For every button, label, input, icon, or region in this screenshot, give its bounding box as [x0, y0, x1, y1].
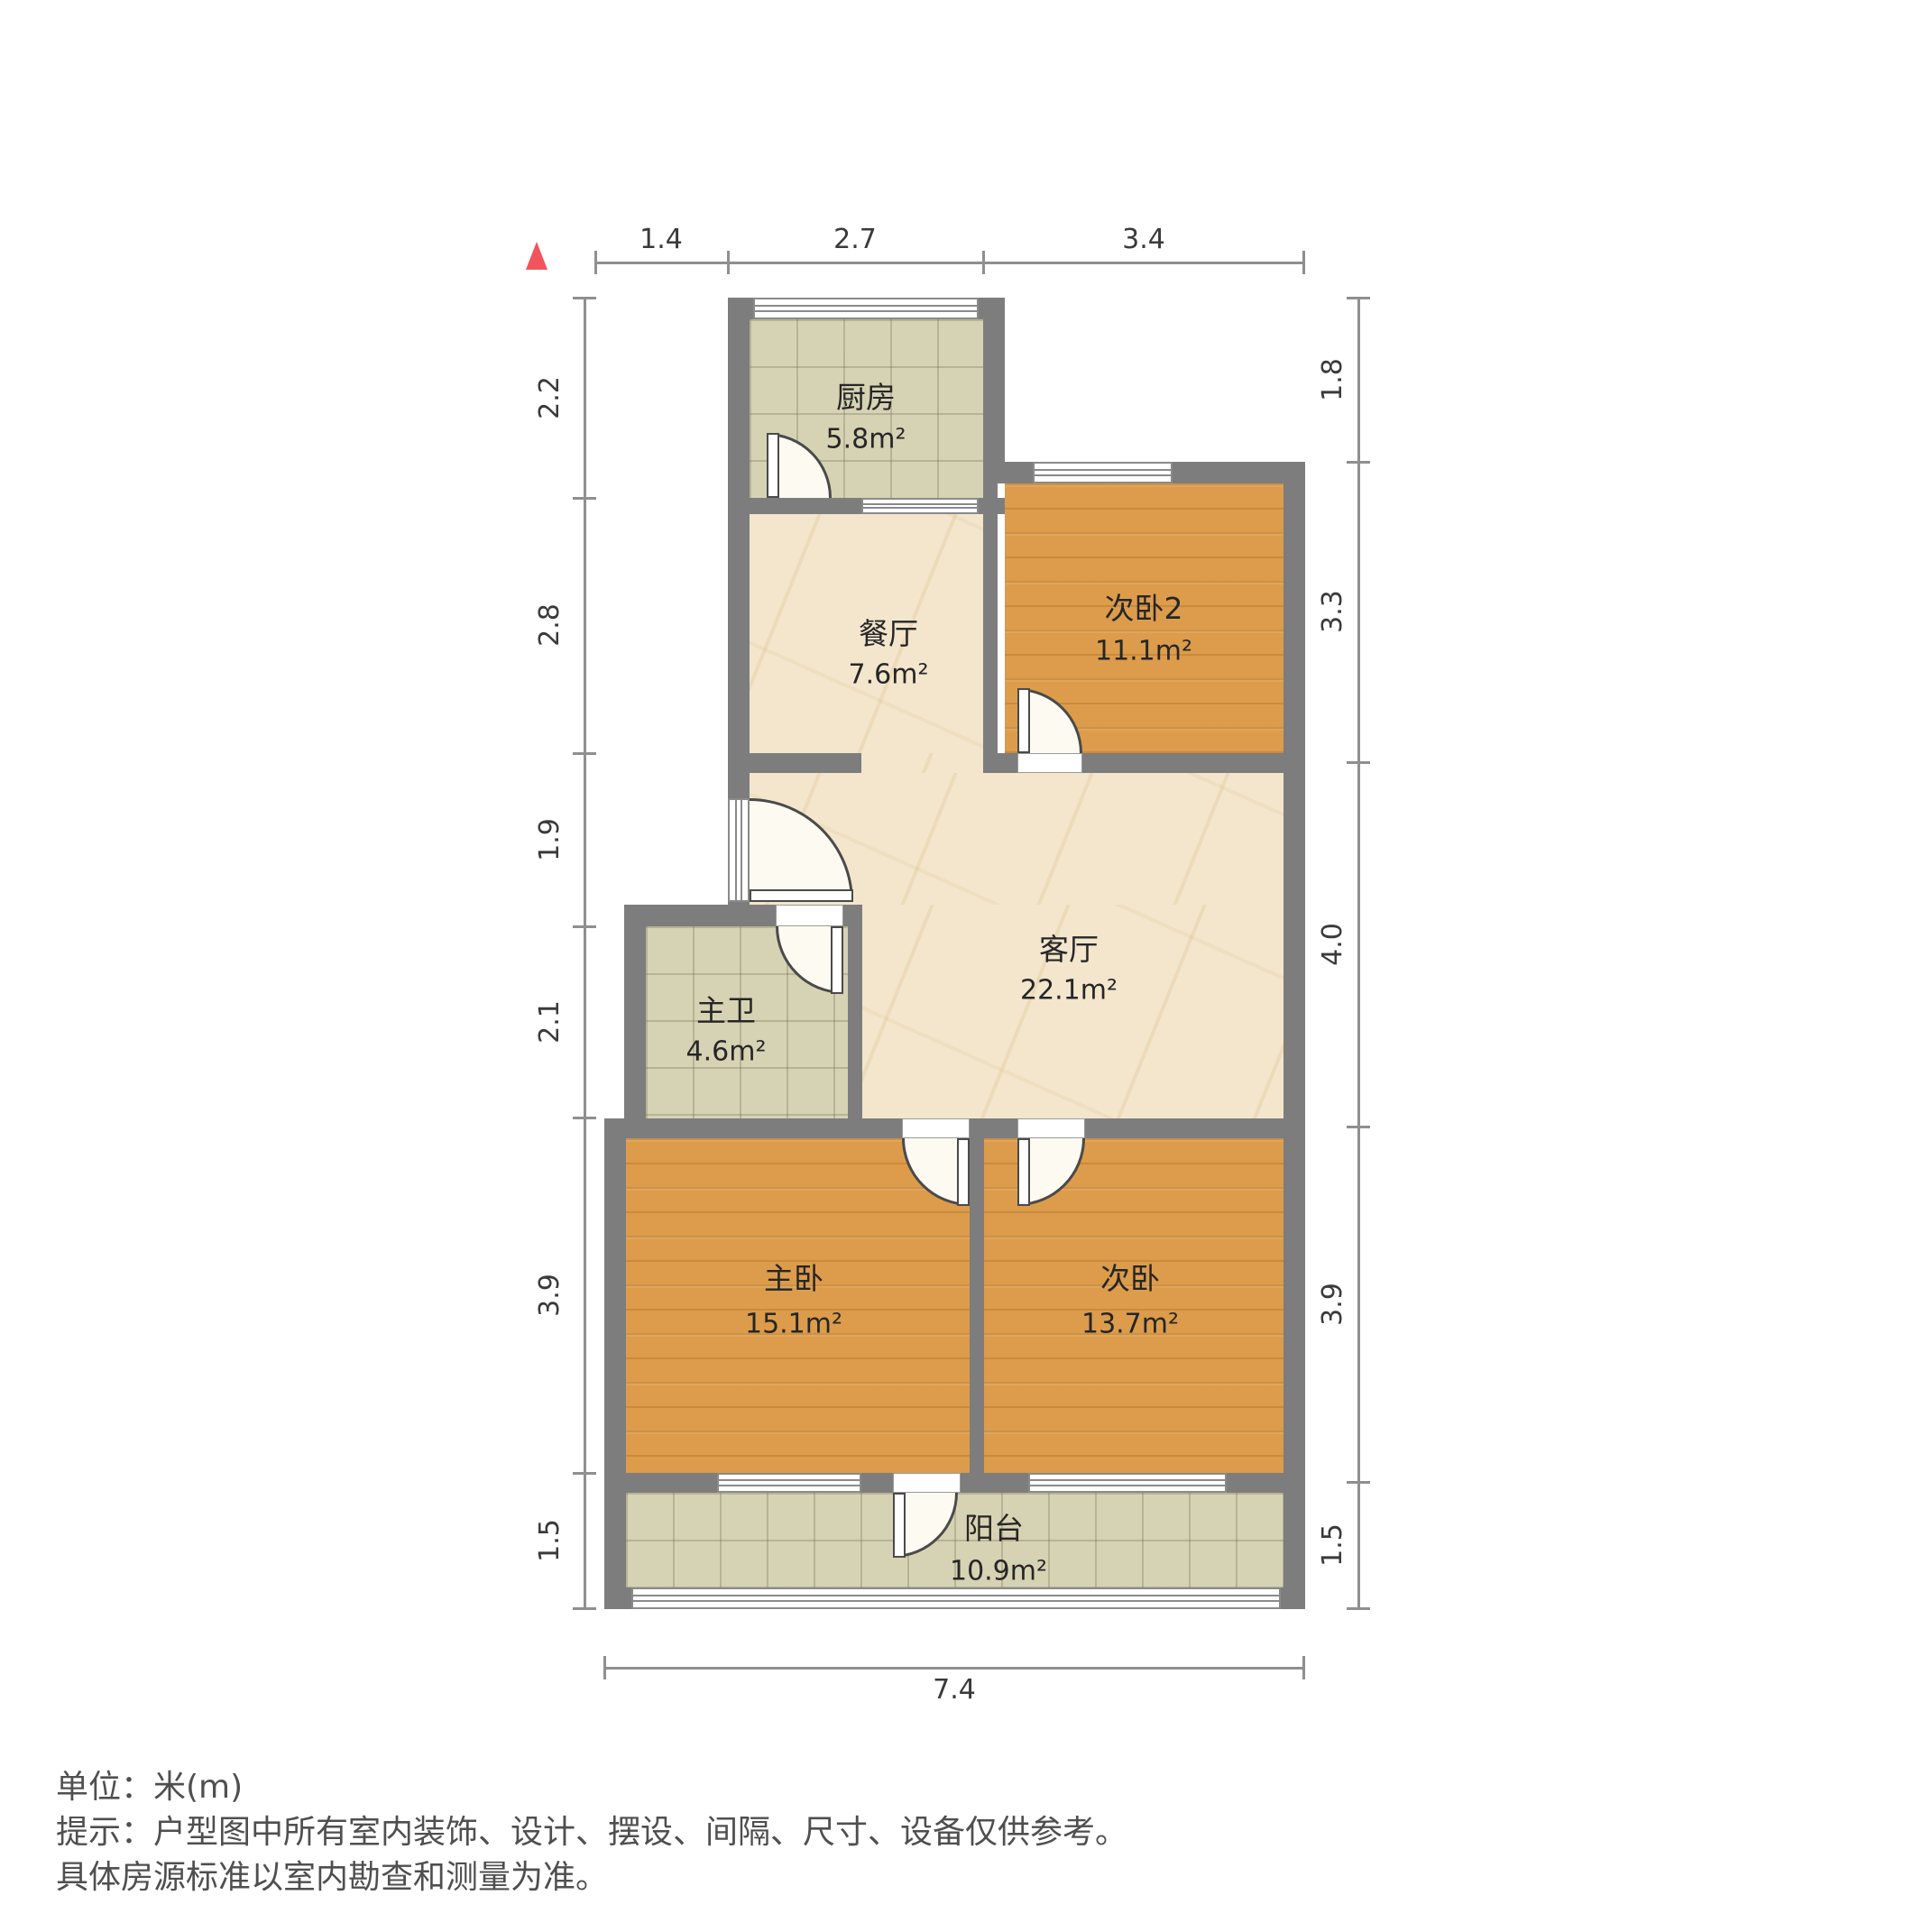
window-second-bottom: [1028, 1473, 1227, 1493]
sill-second-door: [1017, 1118, 1085, 1138]
dimline-bottom: [604, 1667, 1305, 1670]
tick: [727, 251, 730, 274]
sill-balcony-door: [893, 1473, 961, 1493]
area-balcony: 10.9m²: [950, 1556, 1047, 1587]
tick: [982, 251, 985, 274]
dim-left-2: 2.8: [534, 598, 566, 652]
footer-disclaimer: 提示：户型图中所有室内装饰、设计、摆设、间隔、尺寸、设备仅供参考。: [56, 1806, 1127, 1853]
tick: [1347, 1126, 1370, 1128]
dim-top-1: 1.4: [625, 224, 697, 255]
wall-right-outer: [1283, 462, 1305, 1609]
sill-bedroom2-door: [1017, 753, 1082, 773]
window-entry-sill: [728, 798, 750, 902]
tick: [594, 251, 597, 274]
dimline-right: [1357, 298, 1360, 1609]
area-second-bedroom: 13.7m²: [1081, 1309, 1179, 1340]
tick: [1347, 761, 1370, 764]
tick: [573, 297, 596, 299]
wall-bedroom-divider: [970, 1138, 984, 1473]
wall-kitchen-right: [983, 298, 1005, 483]
label-master-bedroom: 主卧: [764, 1255, 823, 1298]
dimline-top: [595, 262, 1305, 264]
area-living: 22.1m²: [1020, 975, 1118, 1007]
door-leaf-master: [957, 1138, 970, 1206]
tick: [1347, 1481, 1370, 1484]
dim-right-5: 1.5: [1317, 1518, 1349, 1572]
dim-left-6: 1.5: [534, 1513, 566, 1568]
window-kitchen-top: [753, 298, 979, 319]
door-leaf-kitchen: [767, 433, 779, 498]
dim-top-3: 3.4: [1108, 224, 1180, 255]
wall-master-left: [604, 1118, 626, 1609]
label-master-bath: 主卫: [696, 987, 756, 1030]
wall-bath-left: [624, 905, 646, 1138]
tick: [1302, 1656, 1305, 1679]
wall-bath-right: [848, 905, 862, 1138]
wall-left-upper: [728, 298, 750, 798]
tick: [573, 1607, 596, 1610]
tick: [573, 497, 596, 500]
sill-master-door: [902, 1118, 970, 1138]
dimline-left: [584, 298, 586, 1609]
tick: [1347, 461, 1370, 464]
door-leaf-bedroom2: [1017, 688, 1030, 753]
window-balcony-bottom: [631, 1587, 1281, 1609]
door-leaf-balcony: [893, 1493, 906, 1558]
dim-right-1: 1.8: [1317, 353, 1349, 407]
door-leaf-bath: [831, 926, 843, 994]
tick: [573, 1472, 596, 1475]
label-dining: 餐厅: [859, 610, 918, 653]
area-master-bedroom: 15.1m²: [745, 1309, 842, 1340]
sill-bath-door: [776, 905, 843, 926]
dim-left-3: 1.9: [534, 813, 566, 867]
window-bedroom2-top: [1033, 462, 1173, 483]
north-arrow-icon: [526, 242, 547, 270]
dim-top-2: 2.7: [819, 224, 891, 255]
area-master-bath: 4.6m²: [686, 1036, 767, 1068]
tick: [1347, 297, 1370, 299]
label-second-bedroom: 次卧: [1100, 1255, 1160, 1298]
tick: [573, 1117, 596, 1119]
wall-dining-right: [983, 483, 998, 753]
floorplan-canvas: 厨房 5.8m² 餐厅 7.6m² 次卧2 11.1m² 客厅 22.1m² 主…: [0, 0, 1932, 1932]
area-dining: 7.6m²: [849, 659, 929, 691]
door-leaf-second: [1017, 1138, 1030, 1206]
area-bedroom2: 11.1m²: [1095, 636, 1192, 667]
tick: [573, 752, 596, 755]
label-balcony: 阳台: [964, 1504, 1024, 1548]
tick: [573, 925, 596, 928]
dim-bottom-1: 7.4: [918, 1674, 990, 1706]
floor-passage: [861, 753, 983, 773]
tick: [603, 1656, 606, 1679]
dim-right-3: 4.0: [1317, 917, 1349, 971]
dim-left-5: 3.9: [534, 1268, 566, 1322]
tick: [1302, 251, 1305, 274]
footer-unit-note: 单位：米(m): [56, 1761, 243, 1808]
label-kitchen: 厨房: [836, 373, 896, 417]
dim-right-2: 3.3: [1317, 584, 1349, 639]
door-leaf-entry: [750, 889, 853, 902]
window-kitchen-pass: [861, 498, 979, 514]
floor-master-bedroom: [626, 1138, 970, 1473]
area-kitchen: 5.8m²: [826, 424, 906, 455]
dim-right-4: 3.9: [1317, 1277, 1349, 1331]
label-bedroom2: 次卧2: [1105, 584, 1183, 628]
window-master-bottom: [717, 1473, 861, 1493]
dim-left-1: 2.2: [534, 371, 566, 425]
footer-disclaimer2: 具体房源标准以室内勘查和测量为准。: [56, 1851, 608, 1898]
tick: [1347, 1607, 1370, 1610]
wall-dining-stub: [728, 753, 861, 773]
label-living: 客厅: [1039, 925, 1099, 969]
dim-left-4: 2.1: [534, 995, 566, 1049]
